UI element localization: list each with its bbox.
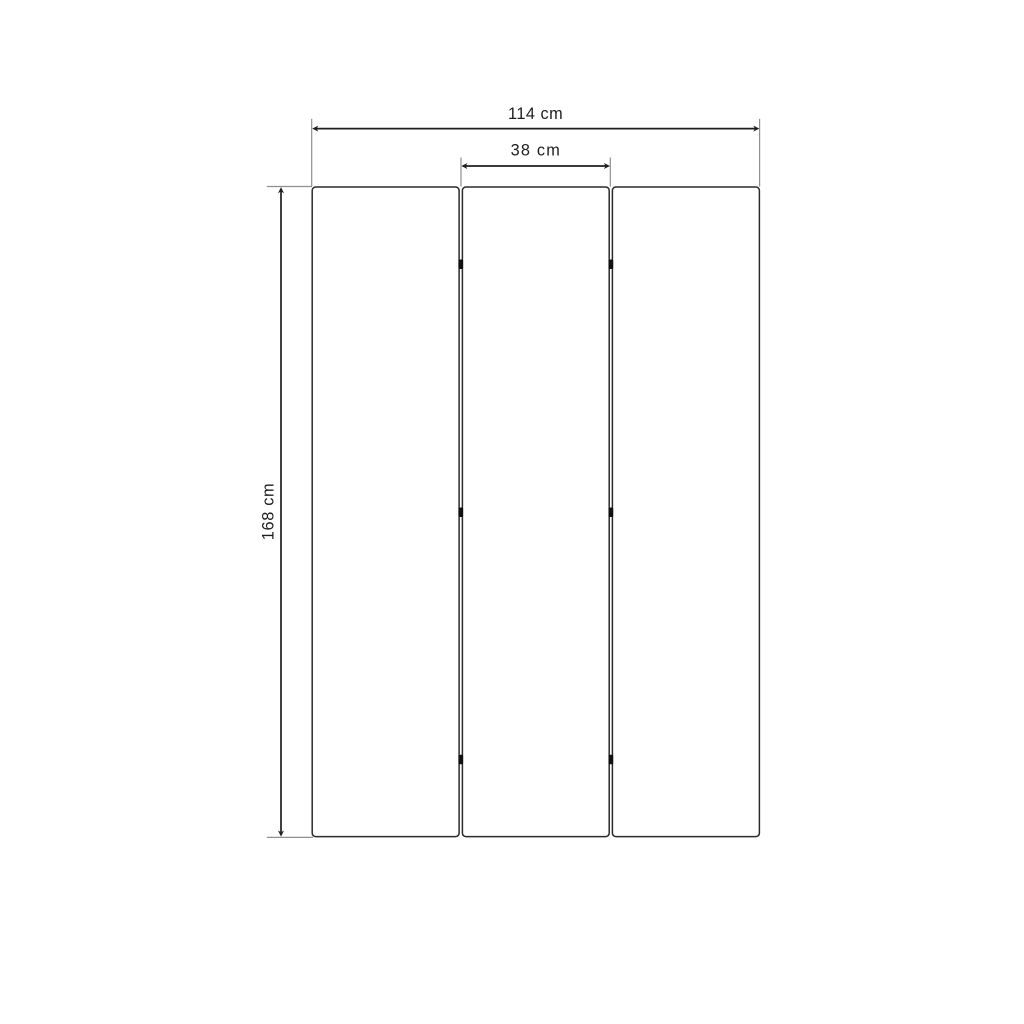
svg-text:114 cm: 114 cm — [508, 105, 563, 123]
svg-text:168 cm: 168 cm — [259, 483, 277, 541]
svg-text:38 cm: 38 cm — [511, 142, 561, 160]
